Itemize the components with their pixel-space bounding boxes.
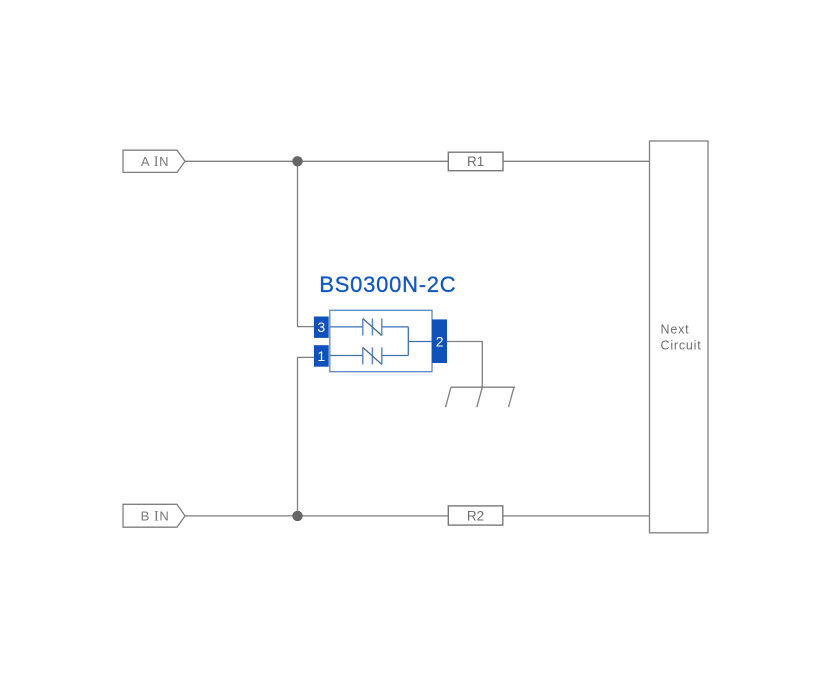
svg-text:R2: R2 (467, 508, 484, 523)
svg-text:R1: R1 (467, 154, 484, 169)
svg-text:3: 3 (317, 319, 325, 335)
svg-text:B IN: B IN (141, 509, 170, 525)
svg-text:1: 1 (317, 348, 325, 364)
svg-text:Next: Next (661, 322, 690, 336)
svg-text:BS0300N-2C: BS0300N-2C (319, 272, 456, 297)
svg-text:Circuit: Circuit (661, 339, 702, 353)
svg-text:A IN: A IN (141, 154, 169, 170)
svg-text:2: 2 (436, 333, 444, 349)
